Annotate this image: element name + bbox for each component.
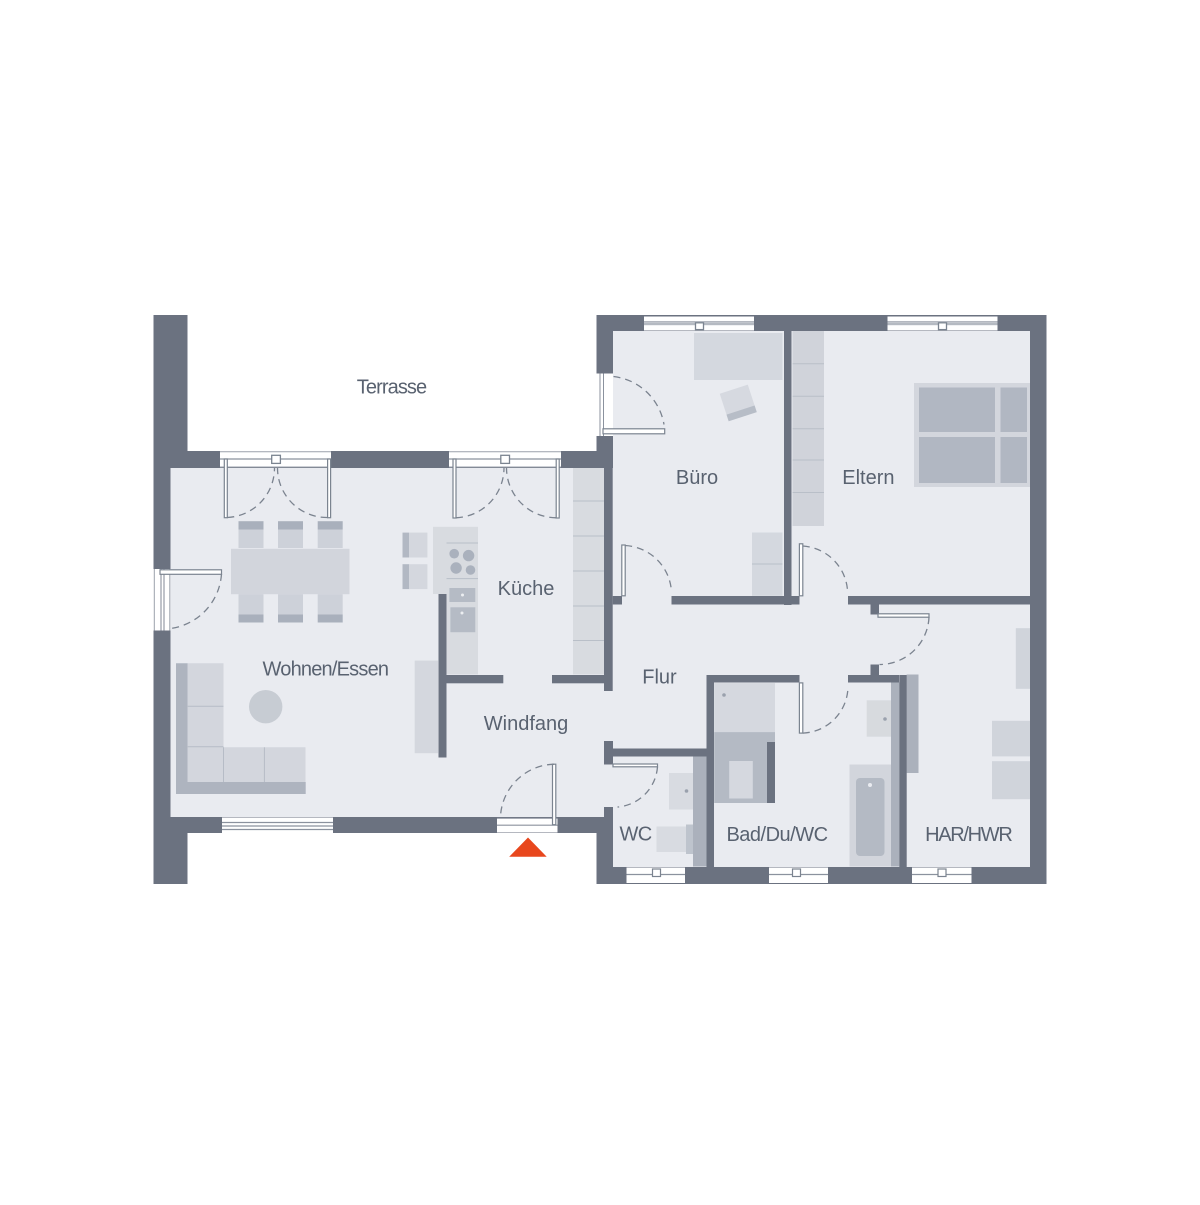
svg-text:Büro: Büro: [676, 467, 718, 489]
svg-text:Bad/Du/WC: Bad/Du/WC: [726, 824, 827, 846]
svg-text:Eltern: Eltern: [842, 467, 894, 489]
svg-text:Windfang: Windfang: [484, 713, 569, 735]
svg-text:WC: WC: [619, 824, 651, 846]
svg-text:Terrasse: Terrasse: [357, 377, 427, 399]
svg-text:Küche: Küche: [498, 578, 555, 600]
svg-text:HAR/HWR: HAR/HWR: [925, 824, 1012, 846]
svg-text:Flur: Flur: [642, 667, 677, 689]
svg-text:Wohnen/Essen: Wohnen/Essen: [263, 659, 389, 681]
